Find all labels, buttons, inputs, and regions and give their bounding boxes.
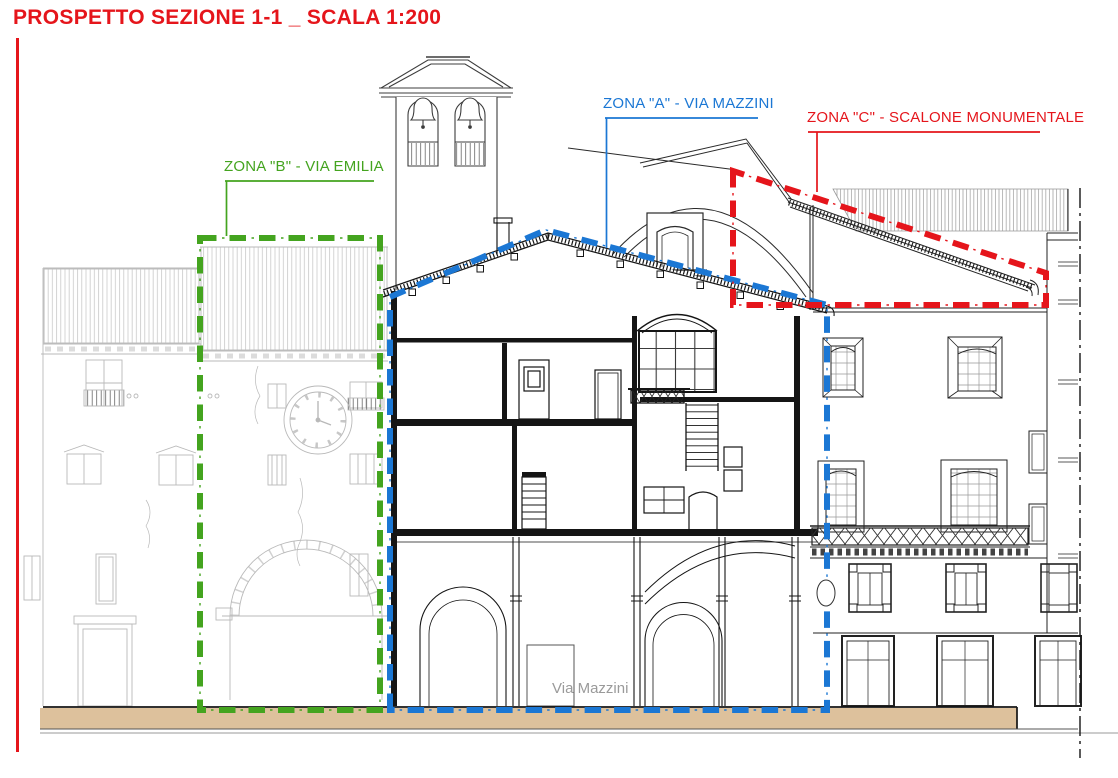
street-label: Via Mazzini	[552, 680, 628, 697]
right-building	[788, 189, 1081, 706]
window	[1029, 504, 1047, 544]
stair-balustrade	[628, 389, 690, 403]
left-window	[96, 554, 116, 604]
left-background-building	[24, 247, 390, 706]
zone-b-label: ZONA "B" - VIA EMILIA	[224, 158, 384, 175]
background-arch	[216, 540, 390, 700]
left-window	[268, 384, 286, 408]
portal-door	[1035, 636, 1081, 706]
left-window	[84, 360, 124, 406]
side-building-edge	[1047, 189, 1078, 633]
drawing-sheet: PROSPETTO SEZIONE 1-1 _ SCALA 1:200	[0, 0, 1118, 778]
left-window	[156, 446, 196, 485]
clock-face	[284, 386, 352, 454]
window	[1029, 431, 1047, 473]
rooftop-hatch	[833, 189, 1068, 231]
portal-door	[842, 636, 894, 706]
balcony-balustrade	[810, 526, 1047, 558]
window	[948, 337, 1002, 398]
bell-tower	[379, 57, 513, 291]
zone-c-leader	[808, 132, 1040, 192]
left-window	[24, 556, 40, 600]
window	[946, 564, 986, 612]
zone-c-label: ZONA "C" - SCALONE MONUMENTALE	[807, 109, 1084, 126]
window	[1041, 564, 1077, 612]
window	[849, 564, 891, 612]
reference-ellipse	[817, 580, 835, 606]
left-window	[64, 445, 104, 484]
left-door	[74, 616, 136, 706]
zone-a-label: ZONA "A" - VIA MAZZINI	[603, 95, 774, 112]
zone-b-leader	[225, 181, 374, 236]
window	[941, 460, 1007, 532]
left-window	[268, 455, 286, 485]
portal-door	[937, 636, 993, 706]
